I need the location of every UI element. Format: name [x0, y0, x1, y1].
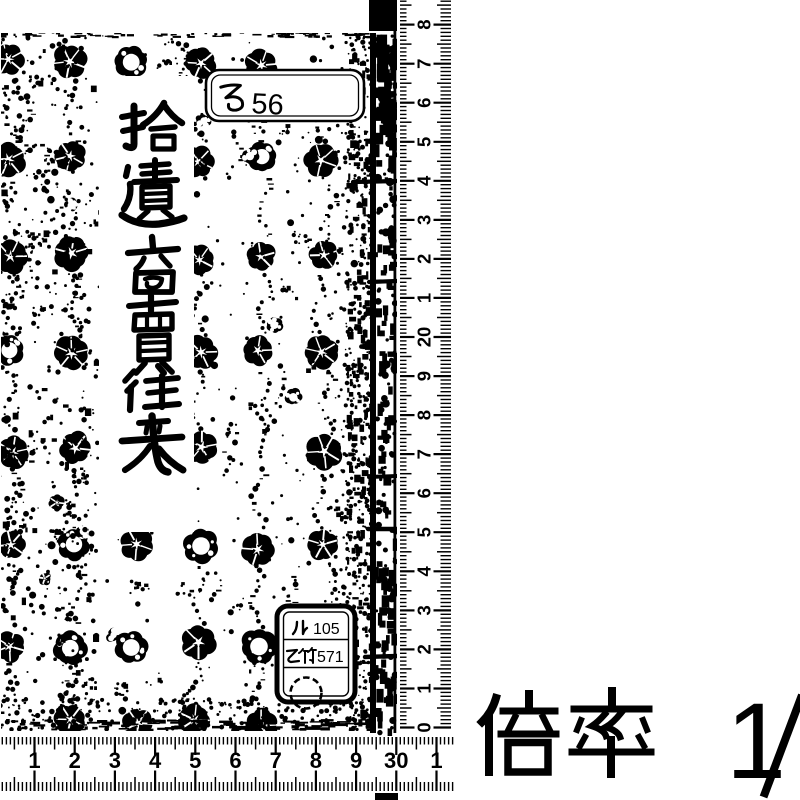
svg-text:6: 6 [414, 98, 435, 108]
svg-text:20: 20 [414, 327, 435, 348]
svg-text:1: 1 [726, 680, 786, 800]
svg-text:5: 5 [189, 748, 201, 773]
svg-text:8: 8 [310, 748, 322, 773]
svg-text:7: 7 [270, 748, 282, 773]
svg-text:0: 0 [414, 722, 435, 732]
svg-text:4: 4 [414, 565, 435, 576]
svg-text:8: 8 [414, 19, 435, 29]
svg-text:8: 8 [414, 410, 435, 420]
svg-text:4: 4 [149, 748, 162, 773]
svg-text:2: 2 [414, 254, 435, 264]
svg-text:56: 56 [251, 88, 285, 122]
svg-text:571: 571 [317, 649, 344, 666]
svg-text:9: 9 [414, 371, 435, 381]
svg-text:5: 5 [414, 527, 435, 537]
svg-text:1: 1 [430, 748, 442, 773]
svg-text:30: 30 [384, 748, 408, 773]
svg-text:1: 1 [28, 748, 40, 773]
svg-text:2: 2 [69, 748, 81, 773]
svg-text:1: 1 [414, 683, 435, 693]
svg-text:5: 5 [414, 137, 435, 147]
svg-text:4: 4 [414, 175, 435, 186]
svg-text:7: 7 [414, 59, 435, 69]
svg-text:3: 3 [109, 748, 121, 773]
svg-text:2: 2 [414, 644, 435, 654]
svg-text:1: 1 [414, 293, 435, 303]
svg-text:7: 7 [414, 449, 435, 459]
svg-text:9: 9 [350, 748, 362, 773]
svg-text:3: 3 [414, 215, 435, 225]
svg-text:3: 3 [414, 605, 435, 615]
svg-text:105: 105 [313, 621, 340, 638]
svg-text:6: 6 [414, 488, 435, 498]
svg-text:6: 6 [229, 748, 241, 773]
